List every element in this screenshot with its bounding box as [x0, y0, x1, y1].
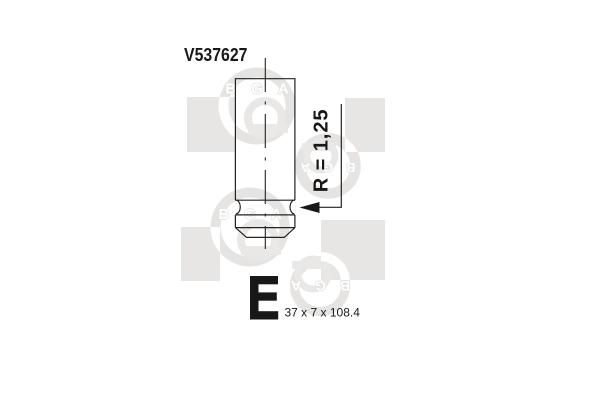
svg-text:37 x 7 x 108.4: 37 x 7 x 108.4 [285, 306, 361, 320]
svg-text:BGA: BGA [225, 81, 303, 98]
svg-text:BGA: BGA [277, 278, 350, 294]
svg-text:R = 1,25: R = 1,25 [311, 109, 333, 193]
svg-text:V537627: V537627 [184, 45, 248, 65]
